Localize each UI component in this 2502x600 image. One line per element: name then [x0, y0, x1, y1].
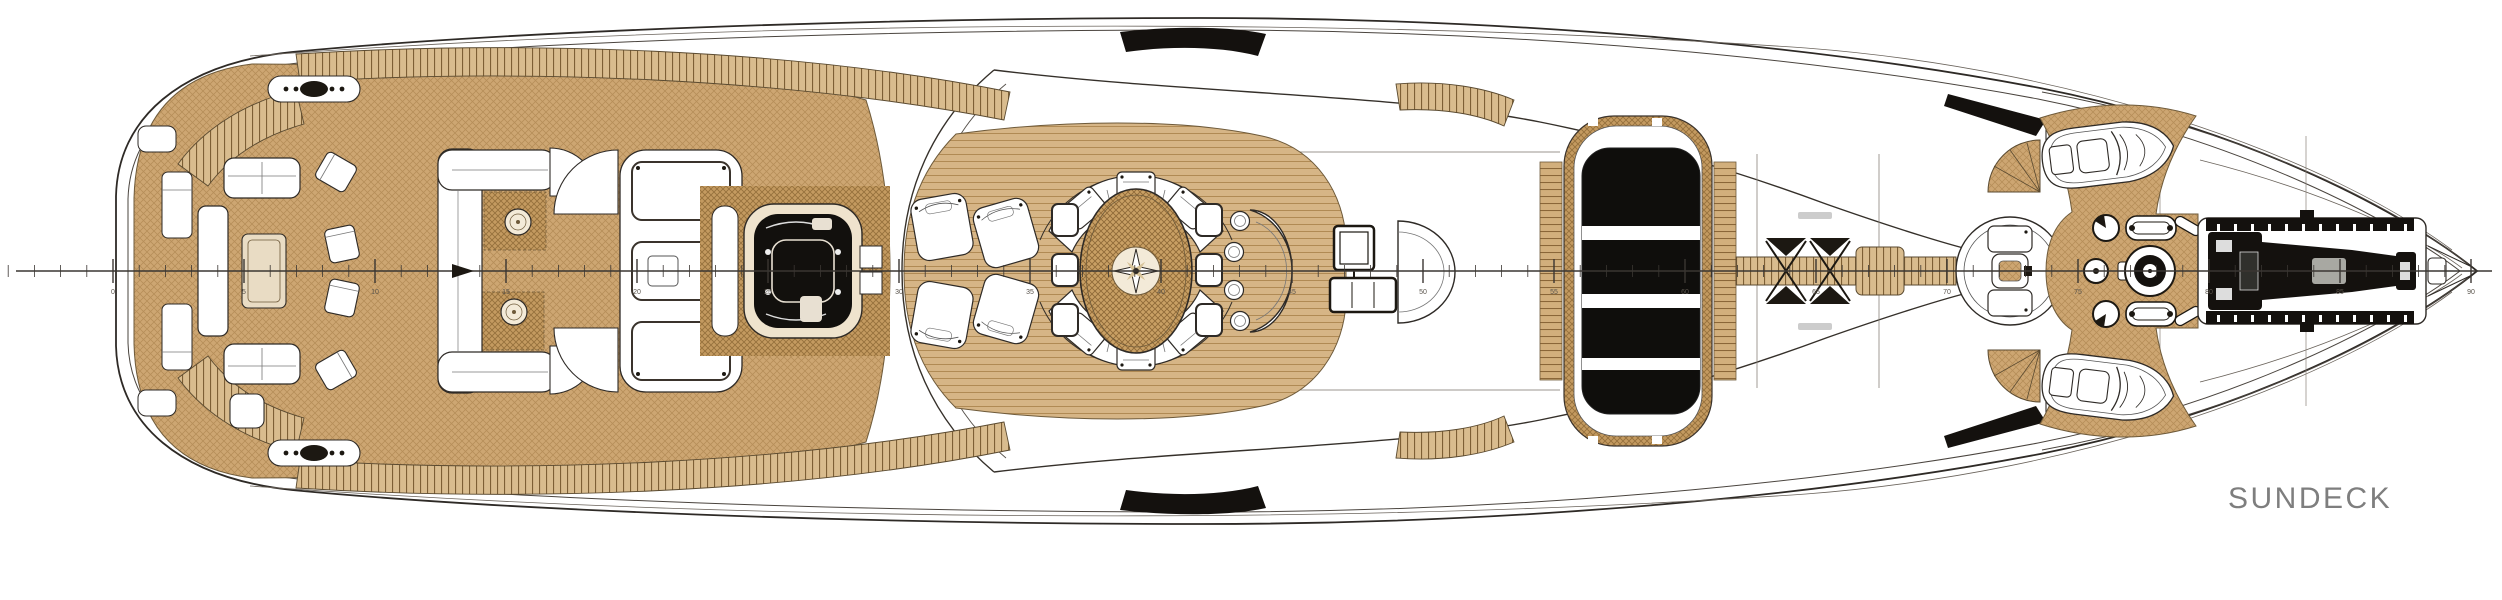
- svg-text:80: 80: [2205, 289, 2213, 296]
- jacuzzi-step-pad: [800, 296, 822, 322]
- svg-text:25: 25: [764, 289, 772, 296]
- aft-stool: [230, 394, 264, 428]
- small-annotation-blur-1: [1798, 212, 1832, 219]
- aft-sun-lounger: [162, 172, 192, 238]
- winch-and-cleat: [2093, 215, 2176, 241]
- svg-text:0: 0: [111, 289, 115, 296]
- skylight-mullion-1: [1582, 226, 1700, 240]
- svg-text:85: 85: [2336, 289, 2344, 296]
- svg-text:60: 60: [1681, 289, 1689, 296]
- skylight-mullion-2: [1582, 294, 1700, 308]
- svg-text:35: 35: [1026, 289, 1034, 296]
- small-annotation-blur-2: [1798, 323, 1832, 330]
- sundeck-plan-page: 051015202530354045505560657075808590 SUN…: [0, 0, 2502, 600]
- svg-text:15: 15: [502, 289, 510, 296]
- aft-capsule-bench: [268, 76, 360, 102]
- svg-text:45: 45: [1288, 289, 1296, 296]
- round-table-1: [505, 209, 531, 235]
- dining-side-chairs-right: [1196, 204, 1222, 336]
- jacuzzi-step-2: [860, 272, 882, 294]
- skylight-glass: [1582, 148, 1700, 414]
- liferaft-box: [138, 126, 176, 152]
- aft-sofa: [224, 158, 300, 198]
- deck-name-label: SUNDECK: [2228, 482, 2392, 515]
- svg-text:10: 10: [371, 289, 379, 296]
- svg-text:70: 70: [1943, 289, 1951, 296]
- round-table-2: [501, 299, 527, 325]
- crane-rail-top: [2206, 218, 2414, 231]
- skylight-group: [1540, 116, 1736, 446]
- svg-text:30: 30: [895, 289, 903, 296]
- skylight-mullion-3: [1582, 358, 1700, 370]
- jacuzzi-step-1: [860, 246, 882, 268]
- svg-text:50: 50: [1419, 289, 1427, 296]
- svg-text:40: 40: [1157, 289, 1165, 296]
- svg-text:65: 65: [1812, 289, 1820, 296]
- jacuzzi-headrest: [812, 218, 832, 230]
- svg-text:75: 75: [2074, 289, 2082, 296]
- svg-text:55: 55: [1550, 289, 1558, 296]
- svg-text:20: 20: [633, 289, 641, 296]
- sundeck-plan-drawing: 051015202530354045505560657075808590 SUN…: [0, 0, 2502, 600]
- svg-text:5: 5: [242, 289, 246, 296]
- svg-text:90: 90: [2467, 289, 2475, 296]
- crane-rail-bottom: [2206, 311, 2414, 324]
